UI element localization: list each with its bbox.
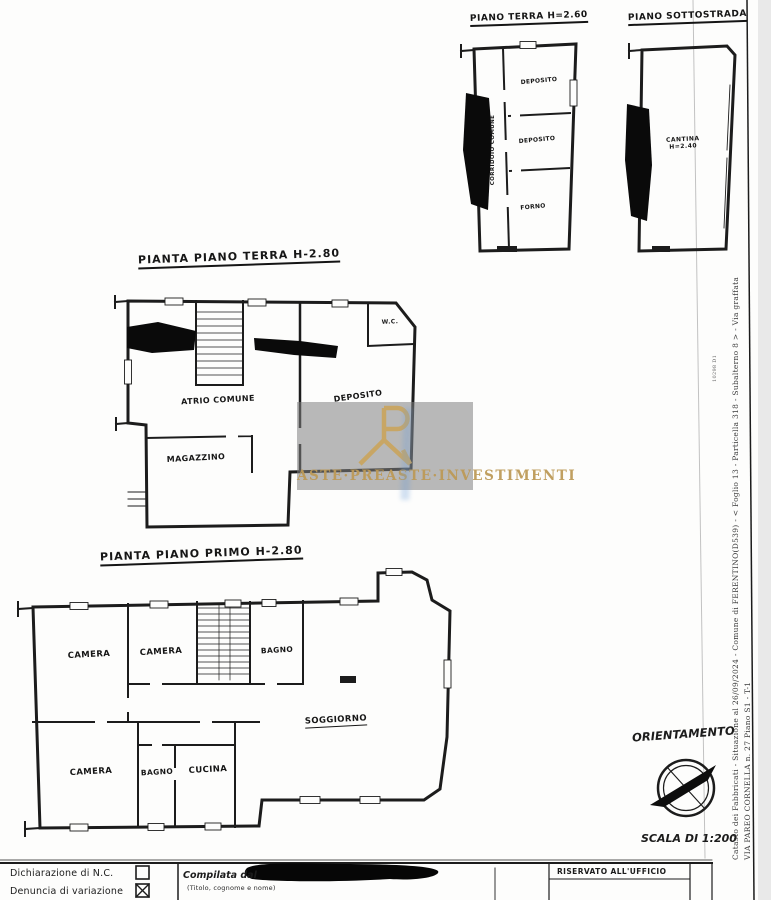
room-label-bagno-1: BAGNO [261, 645, 294, 656]
compiled-by-hint: (Titolo, cognome e nome) [187, 884, 276, 892]
plan-small-terra-drawing [461, 42, 577, 253]
scan-edge-band [758, 0, 771, 900]
doc-code-label: 10298 D1 [712, 355, 718, 382]
declaration-nc-label: Dichiarazione di N.C. [10, 868, 113, 879]
room-label-cucina: CUCINA [188, 764, 227, 776]
room-label-cantina: CANTINA H=2.40 [666, 135, 700, 151]
stairs [197, 602, 250, 684]
compass-icon [650, 760, 716, 816]
office-reserved-label: RISERVATO ALL'UFFICIO [557, 867, 666, 876]
redaction-bar-compiled-by [245, 863, 439, 881]
checkbox-declaration-nc [136, 866, 149, 879]
watermark-brand-text: ASTE·PREASTE·INVESTIMENTI [297, 468, 473, 484]
redaction-blob [625, 104, 652, 221]
address-margin-line: VIA PAREO CORNELLA n. 27 Piano S1 - T-1 [743, 250, 752, 860]
redaction-blob [463, 93, 492, 210]
room-label-bagno-2: BAGNO [141, 767, 174, 778]
scale-label: SCALA DI 1:200 [641, 832, 737, 845]
denuncia-variazione-label: Denuncia di variazione [10, 886, 123, 897]
room-label-corridoio-comune: CORRIDOIO COMUNE [490, 115, 496, 186]
room-label-wc: W.C. [381, 318, 398, 326]
redaction-blob [254, 338, 338, 358]
redaction-blob [127, 322, 196, 353]
brand-logo-icon [340, 402, 430, 468]
planimetria-page: PIANO TERRA H=2.60 PIANO SOTTOSTRADA PIA… [0, 0, 771, 900]
cadastre-margin-line: Catasto dei Fabbricati - Situazione al 2… [731, 250, 740, 860]
plan-primo-drawing [18, 569, 451, 837]
stairs [196, 301, 243, 385]
compiled-by-label: Compilata dal [183, 870, 257, 881]
